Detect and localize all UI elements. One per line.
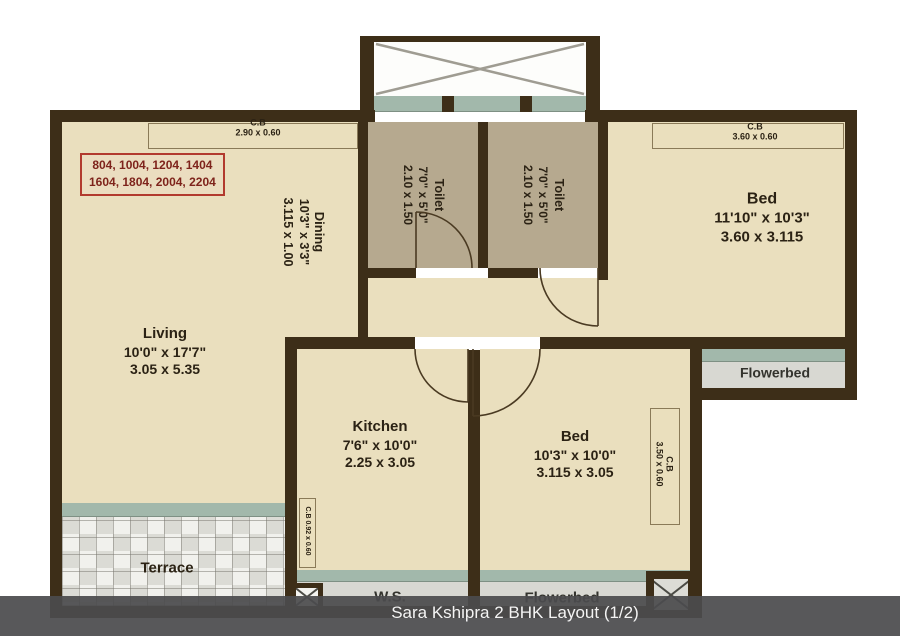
plan-line-overlay xyxy=(0,0,900,636)
caption-text: Sara Kshipra 2 BHK Layout (1/2) xyxy=(130,603,900,623)
toilet2-door-arc xyxy=(540,268,598,326)
door-arcs xyxy=(415,212,598,416)
duct-x-cross xyxy=(376,44,584,94)
caption-bar: Sara Kshipra 2 BHK Layout (1/2) xyxy=(0,596,900,636)
floor-plan-image: 804, 1004, 1204, 1404 1604, 1804, 2004, … xyxy=(0,0,900,636)
bed2-door-arc xyxy=(473,349,540,416)
toilet1-door-arc xyxy=(416,212,472,268)
kitchen-door-arc xyxy=(415,349,468,402)
